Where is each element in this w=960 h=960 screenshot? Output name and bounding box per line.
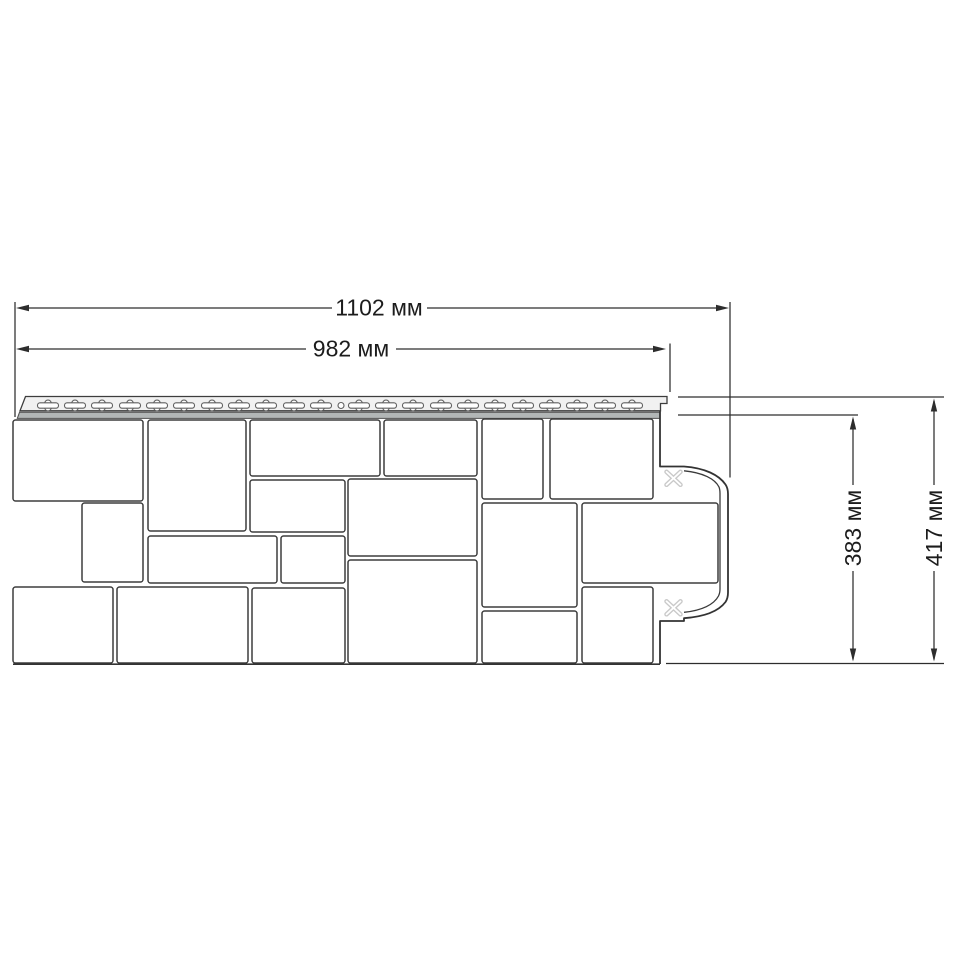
nail-slot-icon [376, 403, 397, 408]
nail-slot-icon [256, 403, 277, 408]
stone [250, 420, 380, 476]
nail-slot-icon [622, 403, 643, 408]
nail-slot-icon [202, 403, 223, 408]
dim-label-face-height: 383 мм [840, 490, 866, 566]
stone [482, 419, 543, 499]
stone [348, 479, 477, 556]
nail-slot-icon [458, 403, 479, 408]
stone [148, 420, 246, 531]
stone [348, 560, 477, 663]
nail-slot-icon [147, 403, 168, 408]
stone [13, 587, 113, 663]
facade-panel-dimension-drawing: 1102 мм 982 мм 383 мм 417 мм [0, 0, 960, 960]
stone [82, 503, 143, 582]
nail-slot-icon [311, 403, 332, 408]
dimension-total-width: 1102 мм [16, 295, 729, 321]
stone [384, 420, 477, 476]
nail-slot-icon [65, 403, 86, 408]
arrow-left-icon [16, 305, 29, 311]
arrow-down-icon [850, 649, 856, 662]
nail-strip [17, 397, 667, 419]
nail-slot-icon [92, 403, 113, 408]
stone [250, 480, 345, 532]
stone [148, 536, 277, 583]
nail-slot-icon [540, 403, 561, 408]
nail-slot-icon [485, 403, 506, 408]
stone [252, 588, 345, 663]
nail-slot-icon [284, 403, 305, 408]
arrow-right-icon [716, 305, 729, 311]
nail-slot-icon [120, 403, 141, 408]
stone [482, 611, 577, 663]
nail-slot-icon [38, 403, 59, 408]
nail-slot-icon [595, 403, 616, 408]
arrow-right-icon [653, 346, 666, 352]
dimension-face-height: 383 мм [840, 417, 866, 662]
dim-label-face-width: 982 мм [313, 336, 389, 362]
panel-top-edge-band [17, 412, 660, 418]
dimension-face-width: 982 мм [16, 336, 666, 362]
cut-mark-x-inner [667, 472, 681, 485]
dimension-total-height: 417 мм [921, 399, 947, 662]
stone [582, 503, 718, 583]
panel-drawing-svg: 1102 мм 982 мм 383 мм 417 мм [0, 0, 960, 960]
stone-pattern [13, 419, 718, 663]
arrow-up-icon [931, 399, 937, 412]
arrow-left-icon [16, 346, 29, 352]
stone [13, 420, 143, 501]
stone [117, 587, 248, 663]
round-nail-hole-icon [338, 403, 344, 409]
nail-slot-icon [567, 403, 588, 408]
nail-slot-icon [229, 403, 250, 408]
nail-slot-icon [403, 403, 424, 408]
dim-label-total-width: 1102 мм [335, 295, 422, 321]
nail-slot-icon [513, 403, 534, 408]
stone [582, 587, 653, 663]
stone [550, 419, 653, 499]
arrow-down-icon [931, 649, 937, 662]
nail-slot-icon [431, 403, 452, 408]
dim-label-total-height: 417 мм [921, 490, 947, 566]
nail-slot-icon [349, 403, 370, 408]
cut-mark-x-inner [667, 601, 681, 614]
nail-slot-icon [174, 403, 195, 408]
stone [281, 536, 345, 583]
arrow-up-icon [850, 417, 856, 430]
stone [482, 503, 577, 607]
